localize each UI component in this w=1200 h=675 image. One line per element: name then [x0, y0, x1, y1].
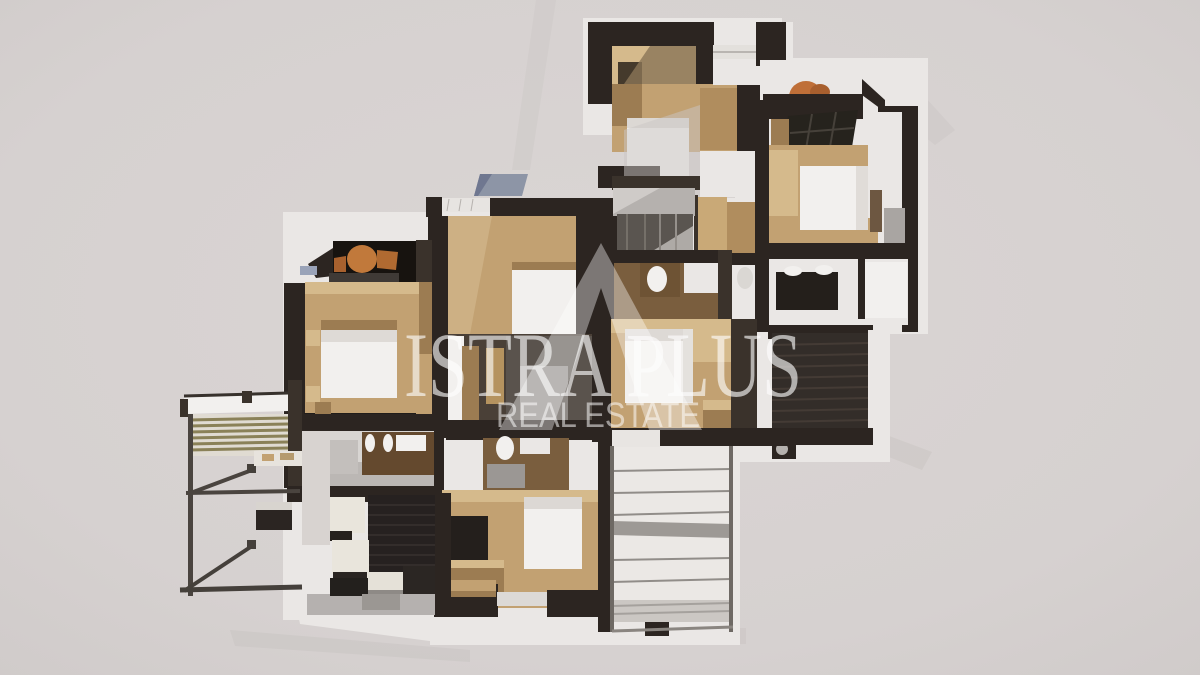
svg-text:REAL ESTATE: REAL ESTATE [496, 396, 700, 435]
